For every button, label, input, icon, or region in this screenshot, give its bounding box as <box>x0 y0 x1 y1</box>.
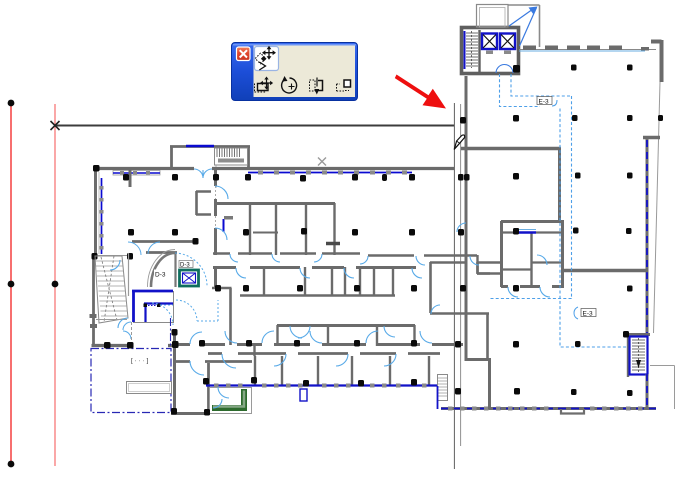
svg-text:E-3: E-3 <box>539 99 550 106</box>
svg-text:E-3: E-3 <box>583 311 594 318</box>
svg-text:D-3: D-3 <box>155 272 166 279</box>
svg-text:D-3: D-3 <box>180 263 190 269</box>
svg-text:[ · · · ]: [ · · · ] <box>131 358 149 365</box>
